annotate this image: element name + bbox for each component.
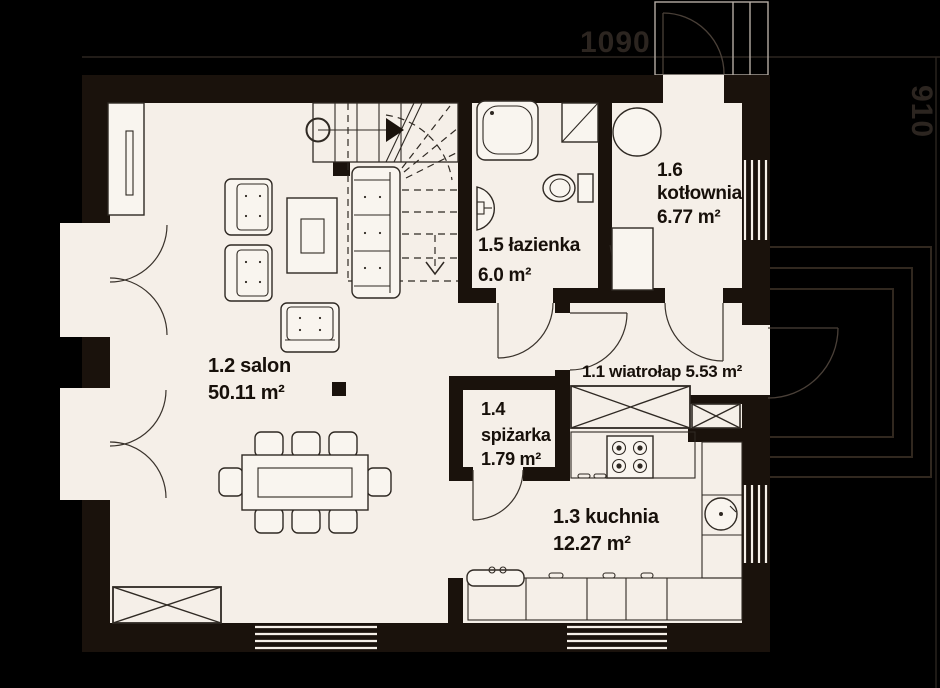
boiler-label: kotłownia [657, 183, 743, 204]
wardrobe-icon [113, 587, 221, 623]
bathtub-icon [477, 101, 538, 160]
hall-label: 1.1 wiatrołap 5.53 m² [582, 362, 743, 381]
armchair-icon [225, 245, 272, 301]
shower-icon [562, 103, 598, 142]
boiler-equipment [610, 228, 653, 290]
boiler-hall-door-opening [665, 288, 723, 303]
french-door-opening-1 [60, 223, 110, 337]
floor-plan: 1.2 salon 50.11 m² 1.5 łazienka 6.0 m² 1… [0, 0, 940, 688]
column [332, 382, 346, 396]
boiler-exterior-door-opening [663, 75, 724, 103]
coffee-table-icon [287, 198, 337, 273]
hall-door-opening [555, 313, 570, 370]
kitchen-round-sink-icon [705, 498, 737, 530]
height-dimension: 910 [905, 85, 938, 138]
sofa-icon [352, 167, 400, 298]
pantry-area: 1.79 m² [481, 449, 541, 469]
kitchen-area: 12.27 m² [553, 533, 631, 555]
pantry-number: 1.4 [481, 399, 505, 419]
salon-area: 50.11 m² [208, 382, 285, 404]
pantry-label: spiżarka [481, 425, 552, 445]
armchair-icon [281, 303, 339, 352]
boiler-number: 1.6 [657, 160, 683, 181]
stove-icon [607, 436, 653, 478]
boiler-area: 6.77 m² [657, 207, 720, 228]
armchair-icon [225, 179, 272, 235]
toilet-icon [543, 174, 593, 202]
french-door-opening-2 [60, 388, 110, 500]
kitchen-label: 1.3 kuchnia [553, 506, 660, 528]
bathroom-label: 1.5 łazienka [478, 235, 581, 256]
bathroom-area: 6.0 m² [478, 265, 531, 286]
entrance-door-opening [742, 325, 770, 395]
salon-label: 1.2 salon [208, 355, 291, 377]
floor-plan-canvas: 1.2 salon 50.11 m² 1.5 łazienka 6.0 m² 1… [0, 0, 940, 688]
pantry-door-opening [473, 467, 523, 481]
width-dimension: 1090 [580, 26, 651, 59]
kitchen-double-sink-icon [467, 567, 524, 586]
wall-stub [448, 578, 463, 623]
bathroom-door-opening [496, 288, 553, 303]
fireplace-icon [108, 103, 144, 215]
boiler-icon [613, 108, 661, 156]
